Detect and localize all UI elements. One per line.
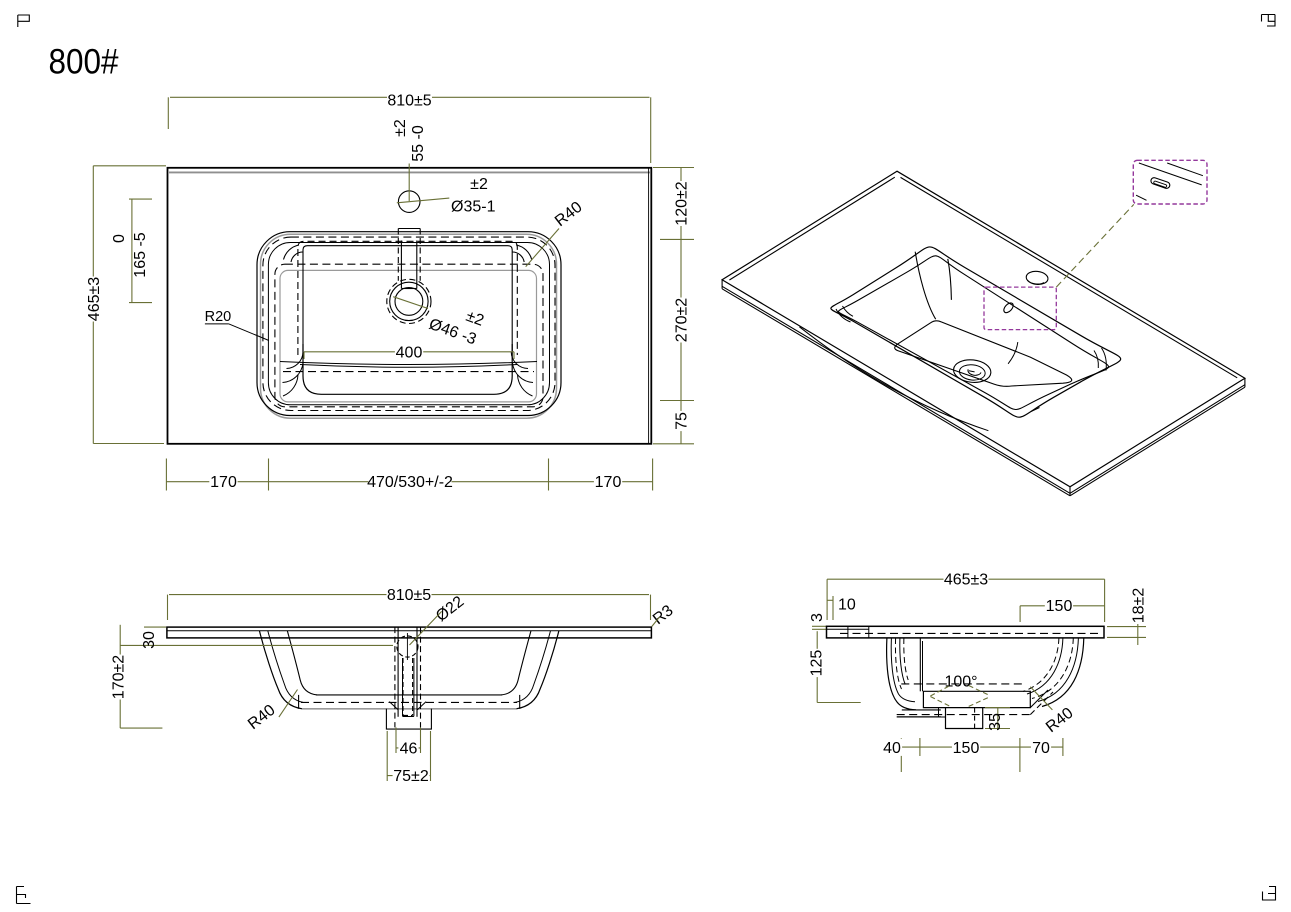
svg-text:R20: R20 <box>205 309 232 325</box>
svg-text:810±5: 810±5 <box>387 587 431 604</box>
svg-text:470/530+/-2: 470/530+/-2 <box>367 474 453 491</box>
svg-text:150: 150 <box>953 740 980 757</box>
svg-text:55 -0: 55 -0 <box>410 125 427 162</box>
svg-text:100°: 100° <box>944 674 977 691</box>
svg-text:165 -5: 165 -5 <box>132 232 149 277</box>
svg-text:465±3: 465±3 <box>944 572 988 589</box>
svg-text:±2: ±2 <box>470 176 488 193</box>
svg-text:170: 170 <box>210 474 237 491</box>
svg-text:10: 10 <box>838 596 856 613</box>
svg-text:150: 150 <box>1046 598 1073 615</box>
svg-text:46: 46 <box>400 740 418 757</box>
svg-text:75: 75 <box>674 412 691 430</box>
svg-text:125: 125 <box>809 650 826 677</box>
svg-text:35: 35 <box>987 713 1004 731</box>
svg-text:3: 3 <box>809 613 826 622</box>
svg-text:400: 400 <box>396 344 423 361</box>
svg-text:70: 70 <box>1032 740 1050 757</box>
svg-text:800#: 800# <box>49 43 119 82</box>
svg-text:270±2: 270±2 <box>674 298 691 342</box>
svg-text:170±2: 170±2 <box>111 655 128 699</box>
svg-text:18±2: 18±2 <box>1130 588 1147 624</box>
svg-text:120±2: 120±2 <box>674 181 691 225</box>
svg-text:170: 170 <box>595 474 622 491</box>
svg-text:Ø35-1: Ø35-1 <box>451 199 496 216</box>
svg-text:30: 30 <box>141 631 158 649</box>
svg-text:75±2: 75±2 <box>393 768 429 785</box>
svg-text:465±3: 465±3 <box>86 277 103 321</box>
svg-text:40: 40 <box>883 740 901 757</box>
svg-text:±2: ±2 <box>392 119 409 137</box>
svg-text:0: 0 <box>111 234 128 243</box>
svg-text:810±5: 810±5 <box>387 92 431 109</box>
